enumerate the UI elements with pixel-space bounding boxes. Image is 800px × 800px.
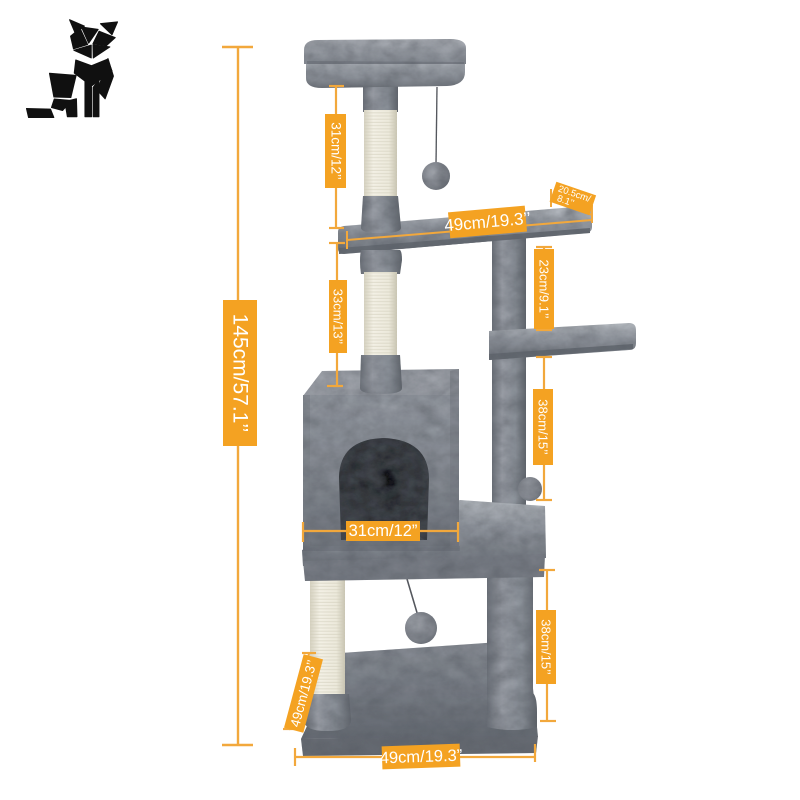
svg-text:31cm/12”: 31cm/12” <box>349 522 418 540</box>
svg-text:38cm/15’’: 38cm/15’’ <box>539 619 554 675</box>
svg-text:49cm/19.3”: 49cm/19.3” <box>379 747 462 768</box>
svg-text:31cm/12’’: 31cm/12’’ <box>329 122 344 180</box>
svg-text:38cm/15’’: 38cm/15’’ <box>536 399 551 455</box>
svg-text:145cm/57.1’’: 145cm/57.1’’ <box>229 314 252 433</box>
svg-text:33cm/13’’: 33cm/13’’ <box>331 289 346 345</box>
svg-text:23cm/9.1’’: 23cm/9.1’’ <box>537 259 552 318</box>
